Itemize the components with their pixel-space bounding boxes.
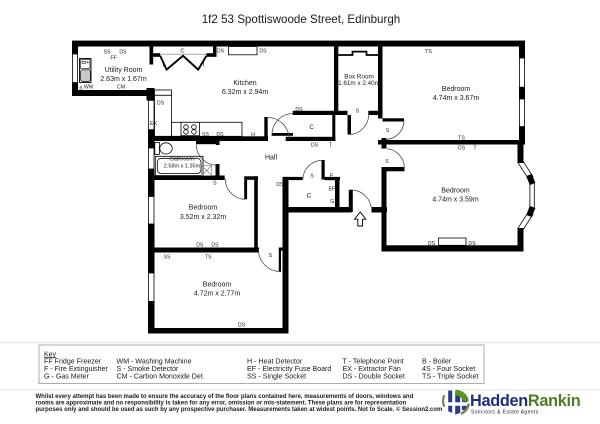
svg-text:DS: DS [217,49,225,55]
svg-text:G: G [330,199,334,205]
svg-text:EF: EF [328,187,335,193]
svg-text:DS: DS [216,132,224,138]
svg-text:TS: TS [458,135,465,141]
svg-text:1.61m x 2.40m: 1.61m x 2.40m [338,80,380,87]
svg-text:S: S [385,159,389,165]
svg-text:DS: DS [238,322,246,328]
svg-text:B: B [79,86,82,92]
svg-text:HaddenRankin: HaddenRankin [470,392,580,410]
svg-text:Bathroom: Bathroom [170,157,194,163]
svg-text:4.74m x 3.59m: 4.74m x 3.59m [432,197,478,204]
svg-text:G - Gas Meter: G - Gas Meter [44,373,90,381]
svg-text:purposes only and should be us: purposes only and should be used as such… [36,406,443,413]
svg-text:DS: DS [259,49,267,55]
svg-text:C: C [181,49,185,55]
svg-text:DS: DS [468,241,476,247]
svg-text:S: S [213,181,217,187]
svg-text:Bedroom: Bedroom [442,86,471,93]
svg-text:3.52m x 2.32m: 3.52m x 2.32m [180,214,226,221]
svg-text:DS: DS [276,182,284,188]
svg-text:WM: WM [84,85,93,91]
svg-text:H: H [251,132,255,138]
svg-text:2.58m x 1.35m: 2.58m x 1.35m [164,164,201,170]
svg-text:SS: SS [202,132,209,138]
svg-text:DS: DS [211,243,219,249]
svg-text:EX: EX [150,121,157,127]
svg-text:Hall: Hall [265,155,278,162]
svg-text:Bedroom: Bedroom [189,205,218,212]
svg-text:Bedroom: Bedroom [441,188,470,195]
svg-text:2.63m x 1.67m: 2.63m x 1.67m [100,76,146,83]
svg-text:S: S [386,128,390,134]
svg-text:DS - Double Socket: DS - Double Socket [343,373,405,381]
svg-text:Bedroom: Bedroom [203,282,232,289]
svg-text:S: S [310,174,314,180]
svg-text:DS: DS [196,243,204,249]
svg-text:rooms are approximate and no r: rooms are approximate and no responsibil… [36,400,407,406]
svg-text:C: C [307,193,312,200]
svg-text:TS: TS [425,49,432,55]
svg-text:FF: FF [110,56,116,62]
svg-text:TS - Triple Socket: TS - Triple Socket [422,373,478,381]
svg-text:DS: DS [311,142,319,148]
svg-text:SS: SS [164,254,171,260]
svg-text:CM - Carbon Monoxide Det.: CM - Carbon Monoxide Det. [117,373,205,381]
svg-text:CM: CM [117,85,125,91]
svg-text:F: F [330,173,333,179]
svg-text:4.74m x 3.67m: 4.74m x 3.67m [433,95,479,102]
svg-text:4.72m x 2.77m: 4.72m x 2.77m [194,291,240,298]
svg-text:Kitchen: Kitchen [233,80,256,87]
svg-text:C: C [309,125,314,131]
svg-text:TS: TS [205,254,212,260]
svg-text:DS: DS [458,146,466,152]
svg-text:Solicitors & Estate Agents: Solicitors & Estate Agents [471,409,539,415]
svg-text:S: S [269,253,273,259]
svg-text:Utility Room: Utility Room [105,67,143,74]
svg-text:S: S [356,109,360,115]
svg-text:DS: DS [295,107,303,113]
svg-text:DS: DS [119,50,127,56]
svg-text:DS: DS [428,241,436,247]
svg-text:1f2 53 Spottiswoode Street, Ed: 1f2 53 Spottiswoode Street, Edinburgh [202,13,401,26]
svg-text:DS: DS [157,101,165,107]
svg-text:Whilst every attempt has been: Whilst every attempt has been made to en… [36,394,414,400]
svg-text:6.32m x 2.94m: 6.32m x 2.94m [222,89,268,96]
svg-text:SS - Single Socket: SS - Single Socket [247,373,306,381]
